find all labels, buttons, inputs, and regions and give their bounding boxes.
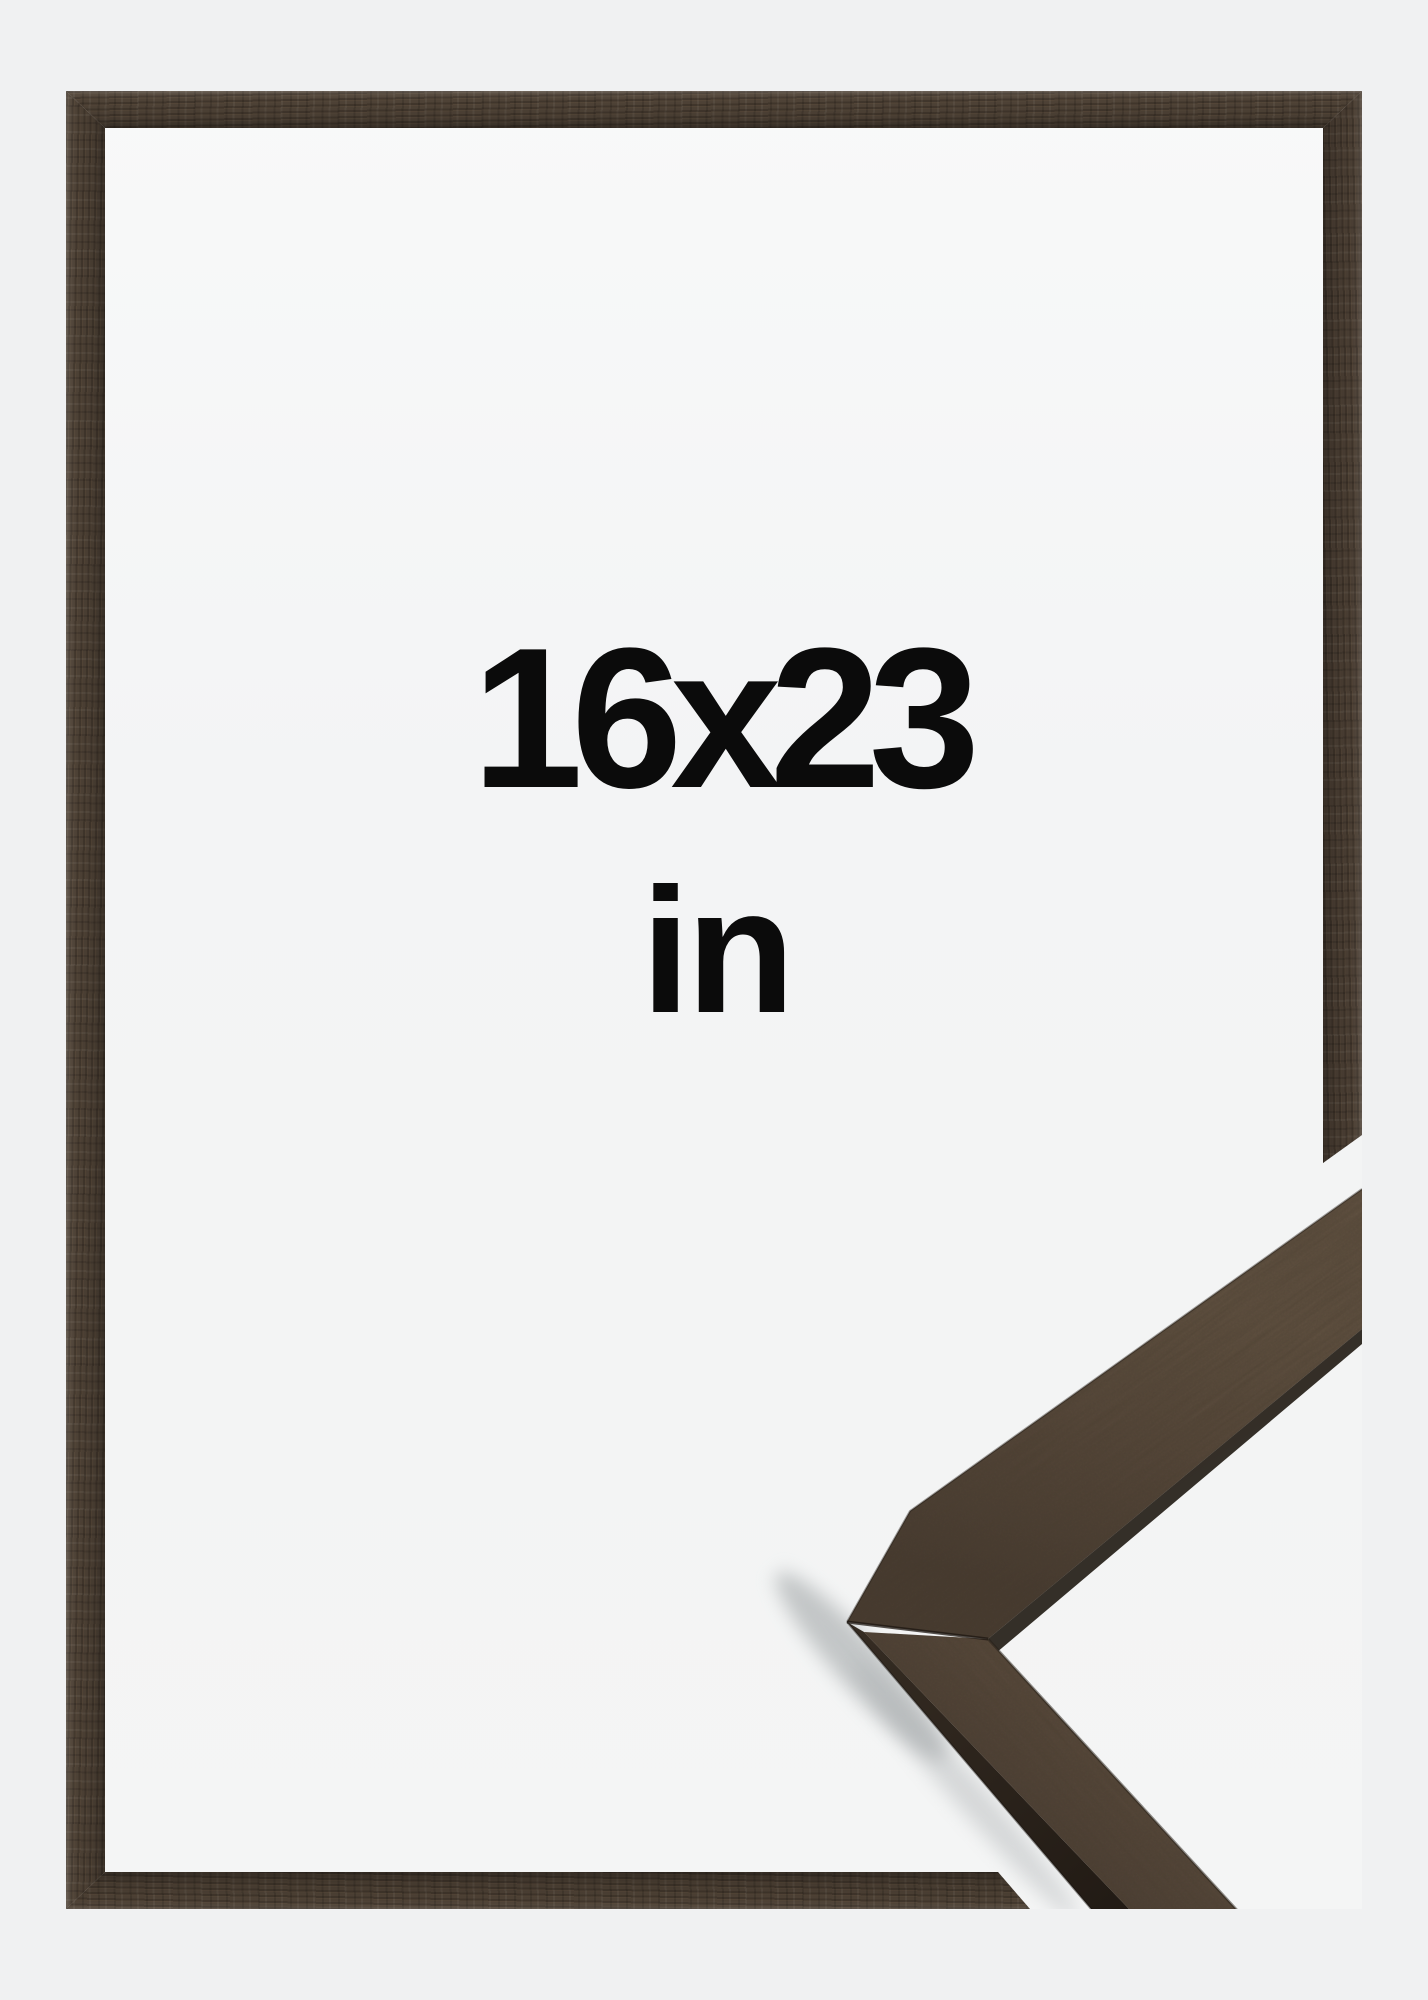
frame-product-image: 16x23 in <box>0 0 1428 2000</box>
frame-photo: 16x23 in <box>66 91 1362 1909</box>
frame-corner-sample <box>66 91 1362 1909</box>
